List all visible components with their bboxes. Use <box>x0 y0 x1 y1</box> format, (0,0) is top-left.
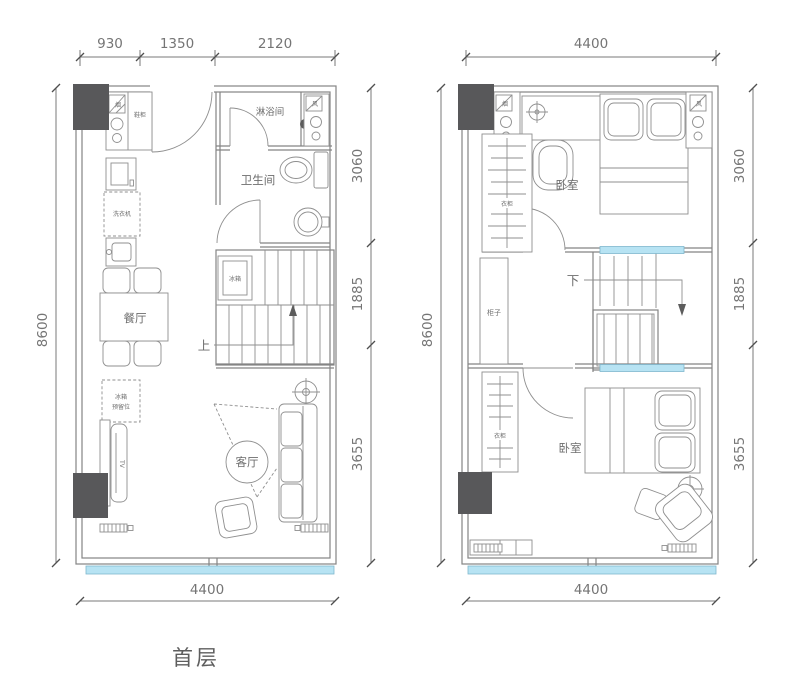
radiator <box>100 524 133 532</box>
appliance-column: 洗衣机 <box>104 158 140 266</box>
dim-right-east: 3060 1885 3655 <box>732 84 757 567</box>
basin-icon <box>294 208 329 236</box>
balcony-window <box>468 566 716 574</box>
down-arrow-icon <box>678 304 686 316</box>
shower-room-label: 淋浴间 <box>256 106 285 118</box>
dim-right-west: 8600 <box>420 84 445 567</box>
wardrobe-top: 衣柜 <box>482 134 532 252</box>
dim-930: 930 <box>97 36 123 52</box>
bedroom-bottom-door <box>523 368 573 418</box>
dim-3060-right: 3060 <box>732 149 748 183</box>
structural-column <box>73 473 108 518</box>
bedroom-bottom-label: 卧室 <box>559 441 582 455</box>
fridge-reserved: 冰箱 预留位 <box>102 380 140 422</box>
kitchen-counter: 烟 鞋柜 <box>106 92 152 150</box>
dining-chair <box>103 341 130 366</box>
dim-3060: 3060 <box>350 149 366 183</box>
dim-left-west: 8600 <box>35 84 60 567</box>
bathroom-door <box>217 200 260 243</box>
ceiling-light-icon <box>292 378 320 406</box>
dim-left-bottom: 4400 <box>76 582 339 605</box>
structural-column <box>458 84 494 130</box>
dim-4400-left: 4400 <box>190 582 224 598</box>
stair-window <box>600 247 684 254</box>
dim-1350: 1350 <box>160 36 194 52</box>
living-label: 客厅 <box>236 455 259 469</box>
up-label: 上 <box>198 338 211 353</box>
dim-right-bottom: 4400 <box>462 582 720 605</box>
dim-right-top: 4400 <box>462 36 720 66</box>
bathroom: 卫生间 <box>241 152 329 236</box>
hood-label: 烟 <box>115 101 121 109</box>
floor-plan-drawing: 烟 鞋柜 洗衣机 餐厅 冰箱 <box>0 0 800 694</box>
bed-bottom <box>585 388 700 473</box>
fridge-reserved-label1: 冰箱 <box>115 393 127 401</box>
cabinet: 柜子 <box>480 258 508 364</box>
floor-plan: 烟 鞋柜 洗衣机 餐厅 冰箱 <box>0 0 800 694</box>
dim-left-top: 930 1350 2120 <box>76 36 339 66</box>
bathroom-label: 卫生间 <box>241 173 276 187</box>
radiator <box>662 544 696 552</box>
dim-4400-right-top: 4400 <box>574 36 608 52</box>
dining-chair <box>103 268 130 293</box>
down-label: 下 <box>567 273 580 288</box>
lounge-chair <box>652 481 716 546</box>
dim-1885: 1885 <box>350 277 366 311</box>
wardrobe-bottom-label: 衣柜 <box>494 432 506 440</box>
shower-room: 淋浴间 风 <box>256 94 329 146</box>
shoe-cabinet-label: 鞋柜 <box>134 111 146 119</box>
dim-3655: 3655 <box>350 437 366 471</box>
dim-3655-right: 3655 <box>732 437 748 471</box>
dim-2120: 2120 <box>258 36 292 52</box>
entry-door <box>152 92 212 152</box>
balcony-window <box>86 566 334 574</box>
hood-label: 烟 <box>502 100 508 108</box>
dim-left-east: 3060 1885 3655 <box>350 84 375 567</box>
radiator <box>295 524 328 532</box>
radiator <box>474 544 502 552</box>
sofa <box>279 404 317 522</box>
wardrobe-bottom: 衣柜 <box>482 372 518 472</box>
stairs: 冰箱 上 <box>198 250 334 364</box>
tv-label: TV <box>118 459 125 469</box>
base-cabinet <box>106 238 136 266</box>
up-arrow-icon <box>289 304 297 316</box>
stairs-right: 下 <box>567 247 686 372</box>
bedroom-bottom: 卧室 衣柜 <box>470 372 716 555</box>
wardrobe-top-label: 衣柜 <box>501 200 513 208</box>
stair-window <box>600 365 684 372</box>
dining-set: 餐厅 <box>100 268 168 366</box>
dim-4400-right-bottom: 4400 <box>574 582 608 598</box>
dim-8600-left: 8600 <box>35 313 51 347</box>
toilet-icon <box>280 152 328 188</box>
structural-column <box>73 84 109 130</box>
dim-8600-right: 8600 <box>420 313 436 347</box>
dim-1885-right: 1885 <box>732 277 748 311</box>
left-unit: 烟 鞋柜 洗衣机 餐厅 冰箱 <box>73 84 336 574</box>
armchair <box>214 496 258 539</box>
fridge-label: 冰箱 <box>229 275 241 283</box>
dining-chair <box>134 341 161 366</box>
fridge-reserved-label2: 预留位 <box>112 403 130 411</box>
vent-column-right: 风 <box>686 92 712 148</box>
plan-title: 首层 <box>172 646 220 670</box>
bedroom-top-label: 卧室 <box>556 178 579 192</box>
vent-label: 风 <box>696 101 702 108</box>
vent-label: 风 <box>312 101 318 108</box>
dining-label: 餐厅 <box>124 311 147 325</box>
right-unit: 烟 <box>458 84 718 574</box>
cabinet-label: 柜子 <box>487 308 501 317</box>
living-room: 客厅 <box>214 378 320 539</box>
washer-label: 洗衣机 <box>113 210 131 218</box>
bed-top <box>600 94 688 214</box>
dining-chair <box>134 268 161 293</box>
structural-column <box>458 472 492 514</box>
